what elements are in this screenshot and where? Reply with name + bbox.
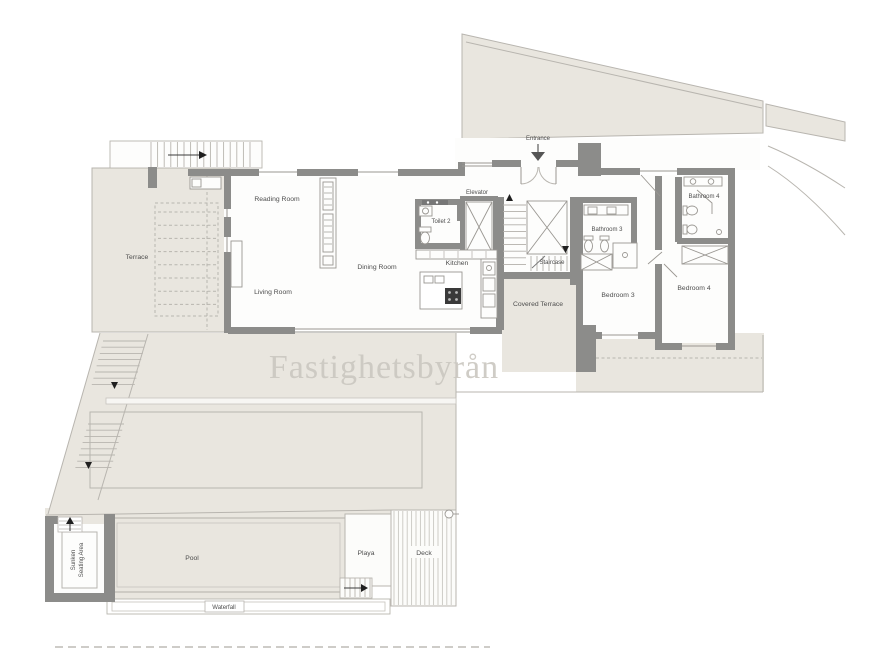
reading-room-cabinet [190,177,221,189]
label-living-room: Living Room [254,289,292,296]
terrace-area [92,168,230,332]
label-bedroom-3: Bedroom 3 [601,292,634,299]
outdoor-shower-icon [445,510,453,518]
label-toilet-2: Toilet 2 [431,219,451,225]
label-bathroom-3: Bathroom 3 [591,227,623,233]
exterior-top-stairs [110,141,262,168]
label-playa: Playa [357,550,374,557]
pool [112,518,345,592]
label-sunken-seating-2: Seating Area [79,542,85,577]
covered-terrace-area [502,279,576,372]
floor-plan-image: Fastighetsbyrån [0,0,870,652]
label-bedroom-4: Bedroom 4 [677,285,710,292]
driveway-arc-1 [768,146,845,188]
living-room-console [231,241,242,287]
waterfall-band [107,599,390,614]
label-bathroom-4: Bathroom 4 [688,194,720,200]
label-elevator: Elevator [466,190,488,196]
label-reading-room: Reading Room [254,196,300,203]
label-sunken-seating-1: Sunken [71,550,77,570]
label-terrace: Terrace [126,254,149,261]
playa-stairs [340,578,372,598]
floor-plan-drawing: Fastighetsbyrån [0,0,870,652]
cooktop [445,288,461,304]
entrance-pier [578,143,601,176]
label-dining-room: Dining Room [357,264,397,271]
label-waterfall: Waterfall [212,605,235,611]
label-pool: Pool [185,555,199,562]
watermark: Fastighetsbyrån [269,349,499,386]
label-kitchen: Kitchen [446,260,469,267]
label-deck: Deck [416,550,432,557]
driveway-arc-2 [768,166,845,235]
driveway-band [766,104,845,141]
label-covered-terrace: Covered Terrace [513,301,563,308]
elevator [466,202,492,252]
fireplace-column [320,178,336,268]
roof-wedge [462,34,763,139]
label-entrance: Entrance [526,136,551,142]
label-staircase: Staircase [539,260,565,266]
